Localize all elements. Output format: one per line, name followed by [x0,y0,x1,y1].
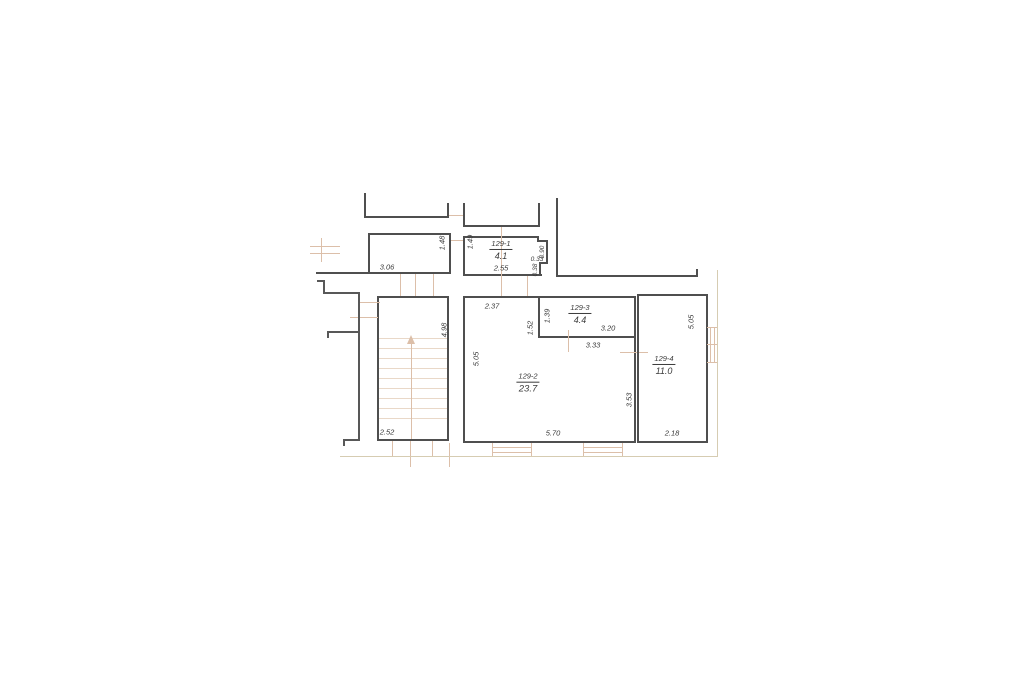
stair-tread [379,388,447,389]
room-number: 129-4 [652,355,675,365]
wall-landing-vertical [358,292,360,441]
dimension-line [451,240,463,241]
annotation-connector-top [449,215,463,216]
window-symbol-pane [583,447,623,448]
room-label-129-2: 129-2 23.7 [516,373,539,396]
room-area: 11.0 [652,365,675,377]
dimension-line [392,441,393,456]
wall-neighbor-tick [696,269,698,277]
dimension-line [310,253,340,254]
window-symbol-left-jamb [583,443,584,456]
dim-niche-width: 0.33 [531,257,544,264]
wall-landing-step3 [323,292,360,294]
dim-room129-2-left: 5.05 [472,352,480,367]
wall-upper-right-left-leg [463,203,465,227]
window-symbol-left-jamb [492,443,493,456]
wall-stair-right [447,296,449,441]
window-symbol-right-jamb [531,443,532,456]
stair-tread [379,418,447,419]
wall-room129-4-left [637,294,639,443]
wall-upper-right-right-leg [538,203,540,227]
dim-room129-4-height: 5.05 [687,315,695,330]
room-area: 4.1 [489,250,512,262]
room-area: 23.7 [516,383,539,395]
window-symbol-pane [492,447,532,448]
dimension-line [400,274,401,296]
wall-landing-bottom-tick [343,439,345,446]
dimension-line [410,441,411,467]
dim-room129-2-top: 2.37 [485,302,500,310]
dim-stair-height: 4.98 [440,323,448,338]
stair-direction-arrow [407,335,415,344]
stair-tread [379,358,447,359]
stair-direction-line [411,344,412,439]
room-area: 4.4 [568,314,591,326]
window-symbol-right-jamb [622,443,623,456]
dimension-line [415,274,416,296]
wall-upper-left-bottom [364,216,449,218]
wall-neighbor-vertical [556,198,558,277]
dim-partition-width: 3.33 [586,341,601,349]
dimension-line [527,276,528,296]
wall-upper-left-leg [364,193,366,218]
wall-room129-3-partition-bottom [538,336,634,338]
wall-room129-1-niche5 [539,262,541,276]
window-symbol-pane [714,327,715,363]
wall-room129-4-top [637,294,708,296]
stair-tread [379,408,447,409]
wall-roomA-left [368,233,370,274]
wall-stair-top [377,296,449,298]
dimension-line [321,238,322,262]
dim-roomA-width: 3.06 [380,263,395,271]
wall-room129-4-bottom [637,441,708,443]
dimension-line [433,274,434,296]
room-label-129-3: 129-3 4.4 [568,304,591,326]
dim-partition-height: 1.52 [526,321,534,336]
wall-room129-2-top [463,296,636,298]
wall-neighbor-horizontal [556,275,698,277]
dim-stair-width: 2.52 [380,428,395,436]
dim-room129-4-width: 2.18 [665,429,680,437]
wall-room129-4-right [706,294,708,443]
dim-room129-3-height: 1.39 [543,309,551,324]
dimension-line [432,441,433,456]
wall-room129-2-right [634,296,636,443]
stair-tread [379,398,447,399]
window-symbol-pane [583,452,623,453]
wall-roomA-bottom [368,272,451,274]
dimension-line [350,317,378,318]
window-symbol-pane [492,452,532,453]
floor-plan-canvas: 129-1 4.1 129-2 23.7 129-3 4.4 129-4 11.… [0,0,1024,682]
room-number: 129-1 [489,240,512,250]
room-number: 129-2 [516,373,539,383]
wall-stair-bottom [377,439,449,441]
dim-room129-1-width: 2.55 [494,264,509,272]
wall-room129-1-bottom [463,274,542,276]
wall-room129-3-partition-left [538,298,540,338]
wall-landing-hook-tick [327,331,329,338]
room-number: 129-3 [568,304,591,314]
stair-tread [379,378,447,379]
boundary-line-bottom [340,456,718,457]
dimension-line [620,352,648,353]
dimension-line [568,330,569,352]
dim-roomA-height: 1.48 [438,236,446,251]
wall-room129-2-bottom [463,441,636,443]
dimension-line [310,246,340,247]
dimension-line [449,443,450,467]
room-label-129-1: 129-1 4.1 [489,240,512,262]
dim-room129-1-height: 1.49 [466,235,474,250]
window-symbol-pane [710,327,711,363]
wall-room129-2-left [463,296,465,443]
dim-jamb: 0.38 [533,264,540,277]
stair-tread [379,368,447,369]
wall-left-extension [316,272,368,274]
dim-room129-2-bottom: 5.70 [546,429,561,437]
dimension-line [358,302,380,303]
wall-landing-bottom [343,439,360,441]
boundary-line-right [717,270,718,457]
dim-room129-2-right: 3.53 [625,393,633,408]
stair-tread [379,348,447,349]
wall-room129-1-niche3 [546,240,548,264]
wall-landing-hook [327,331,360,333]
room-label-129-4: 129-4 11.0 [652,355,675,377]
dim-room129-3-width: 3.20 [601,324,616,332]
